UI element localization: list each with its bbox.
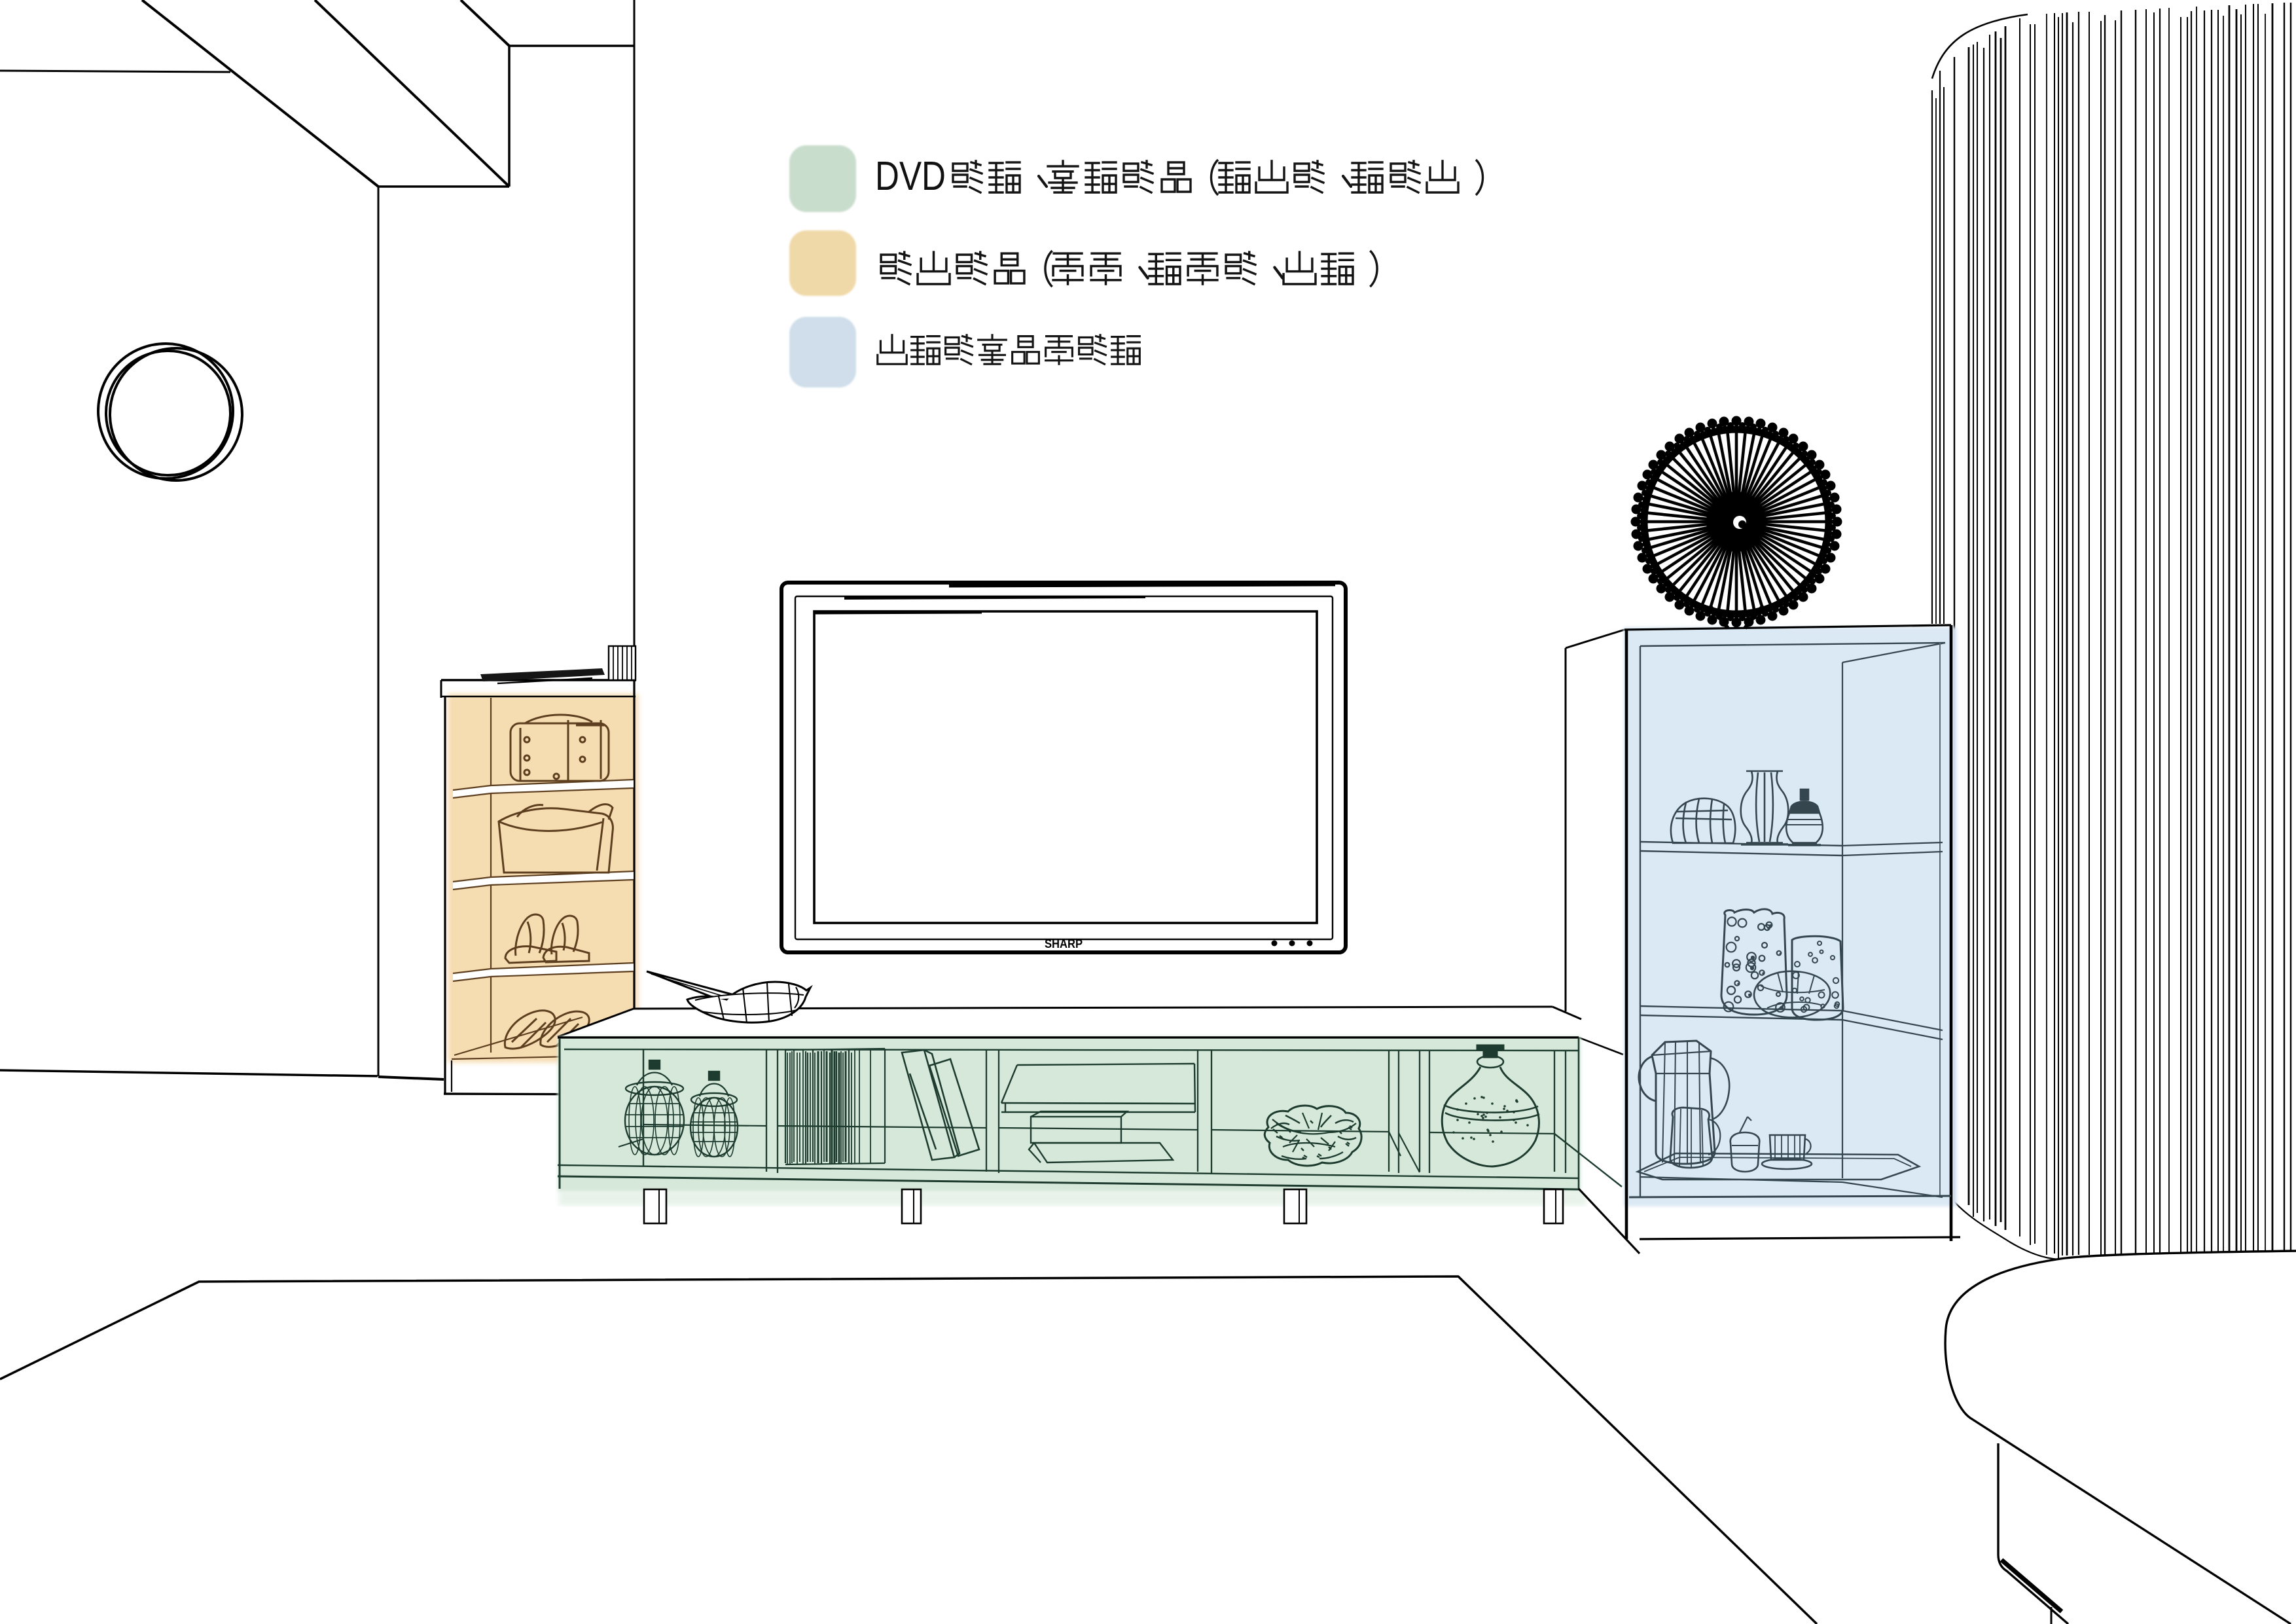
svg-text:DVD: DVD xyxy=(875,154,946,199)
svg-text:SHARP: SHARP xyxy=(1045,937,1083,950)
